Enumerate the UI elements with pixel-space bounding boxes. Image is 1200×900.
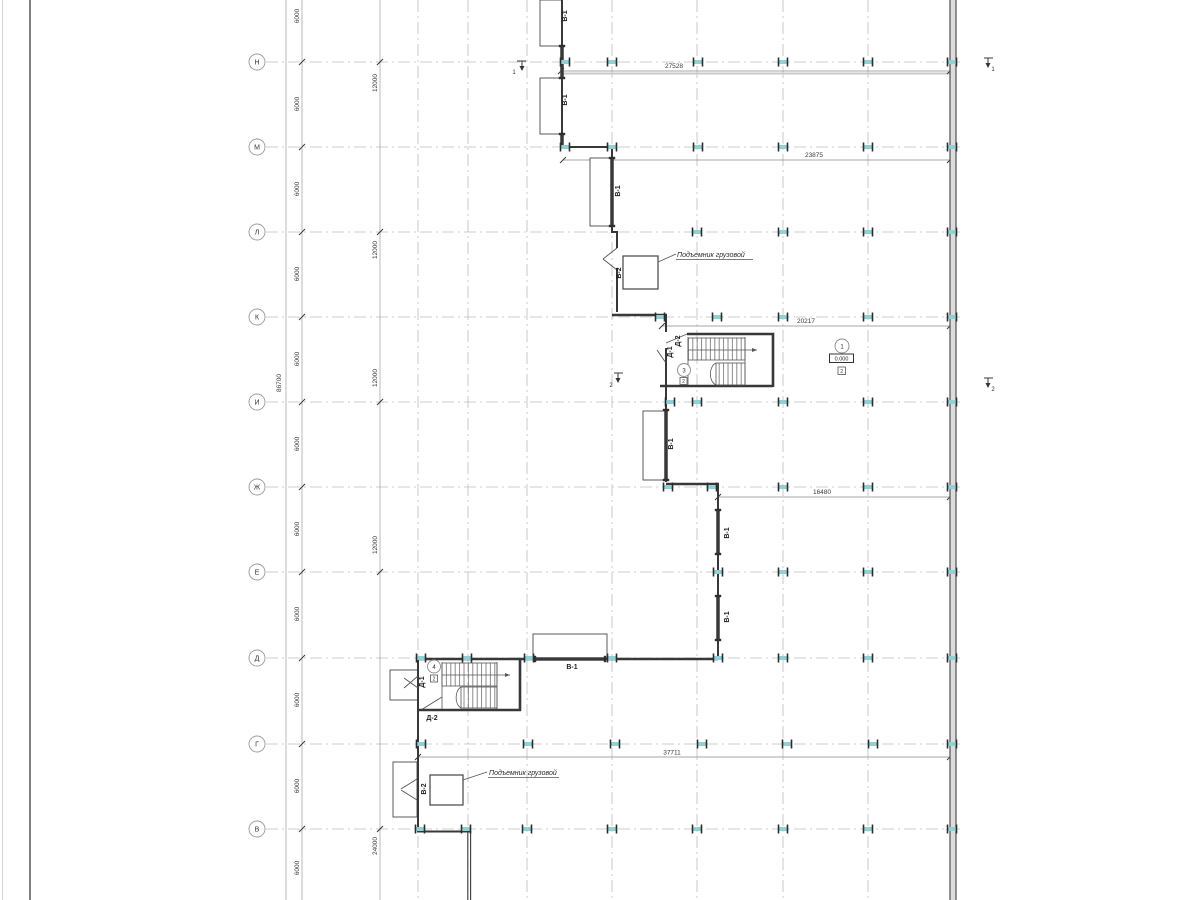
window-bays (390, 0, 665, 817)
door-leaves (401, 248, 687, 800)
section-number: 2 (609, 383, 613, 389)
window-tag: В-1 (668, 438, 675, 449)
dim-27528: 27528 (665, 63, 683, 70)
lift-shaft-label: В-2 (421, 783, 428, 794)
bay-dim: 6000 (294, 181, 301, 196)
stair-direction-arrow (752, 348, 757, 352)
window-tag: В-1 (562, 94, 569, 105)
section-number: 1 (512, 70, 516, 76)
stair-direction-arrow (505, 673, 510, 677)
lift-shaft-box (623, 256, 658, 289)
bay-dim: 6000 (294, 778, 301, 793)
axis-label: Ж (254, 485, 261, 492)
freight-lift-bottom: Подъемник грузовой В-2 (421, 769, 559, 805)
quad-bay-dim: 24000 (372, 837, 379, 855)
double-bay-dim: 12000 (372, 74, 379, 92)
window-tag: В-1 (562, 10, 569, 21)
vertical-dimension-chains: 86700 6000 6000 6000 6000 6000 6000 6000… (276, 0, 383, 900)
dimension-ticks (299, 59, 383, 832)
bay-dim: 6000 (294, 96, 301, 111)
door-tag: Д-1 (419, 676, 426, 687)
bay-dim: 6000 (294, 860, 301, 875)
double-bay-dim: 12000 (372, 536, 379, 554)
stair-flight (461, 687, 497, 708)
section-marks: 1 1 2 2 (512, 58, 995, 393)
double-bay-dim: 12000 (372, 369, 379, 387)
axis-label: И (254, 400, 259, 407)
door-tag: Д-1 (667, 346, 674, 357)
bay-dim: 6000 (294, 436, 301, 451)
door-tag: Д-2 (426, 715, 437, 722)
section-number: 1 (991, 67, 995, 73)
right-wall (950, 0, 956, 900)
window-tag: В-1 (615, 185, 622, 196)
bay-dim: 6000 (294, 266, 301, 281)
bay-dim: 6000 (294, 521, 301, 536)
double-bay-dim: 12000 (372, 241, 379, 259)
sheet-border (3, 0, 31, 900)
door-tag: Д-2 (675, 335, 682, 346)
floor-plan-drawing: Н М Л К И Ж Е Д Г В 86700 6000 6000 6000… (0, 0, 1200, 900)
steel-columns (416, 58, 957, 834)
dim-37711: 37711 (663, 750, 681, 757)
axis-label: М (254, 145, 260, 152)
stair-flight (442, 663, 497, 686)
floor-type: 2 (433, 676, 436, 682)
lift-shaft-label: В-2 (616, 267, 623, 278)
freight-lift-top: Подъемник грузовой В-2 (616, 251, 753, 289)
bay-dim: 6000 (294, 606, 301, 621)
dim-23875: 23875 (805, 152, 823, 159)
floor-type: 2 (682, 379, 685, 385)
window-tag: В-1 (566, 664, 577, 671)
axis-label: В (255, 827, 260, 834)
total-height-dim: 86700 (276, 374, 283, 392)
stair-flight (688, 338, 745, 360)
bay-dim: 6000 (294, 692, 301, 707)
section-number: 2 (991, 387, 995, 393)
room-markers: 3 2 1 0.000 2 4 2 (428, 339, 854, 682)
lift-note: Подъемник грузовой (677, 251, 745, 259)
bay-dim: 6000 (294, 351, 301, 366)
lift-note: Подъемник грузовой (489, 769, 557, 777)
bay-dim: 6000 (294, 8, 301, 23)
axis-label: Е (255, 570, 260, 577)
axis-label: Г (255, 742, 259, 749)
elevation-value: 0.000 (835, 357, 849, 363)
floor-type: 2 (840, 369, 843, 375)
window-tag: В-1 (724, 527, 731, 538)
dim-16480: 16480 (813, 489, 831, 496)
window-tag: В-1 (724, 611, 731, 622)
axis-label: Н (254, 60, 259, 67)
stair-flight (716, 363, 745, 385)
axis-label: Д (255, 656, 260, 663)
dim-20217: 20217 (797, 318, 815, 325)
lift-shaft-box (430, 775, 463, 805)
axis-label: Л (255, 230, 260, 237)
